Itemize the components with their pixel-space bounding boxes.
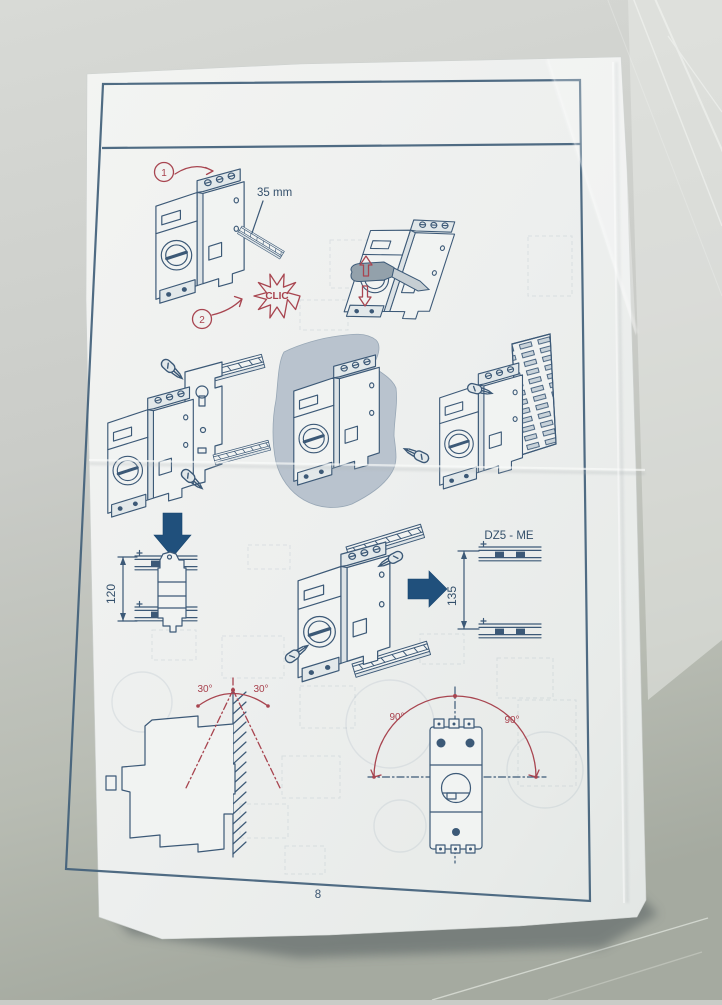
step-2-badge: 2 <box>199 315 205 326</box>
breaker-front-view <box>430 719 482 853</box>
rail-model-label: DZ5 - ME <box>484 530 534 542</box>
dim-135-label: 135 <box>445 586 459 606</box>
step-1-badge: 1 <box>161 168 167 179</box>
clic-label: CLIC <box>265 291 288 302</box>
dim-120-label: 120 <box>104 584 118 604</box>
tilt-right-label: 30° <box>253 684 268 695</box>
photographed-instruction-sheet: 1 2 35 mm CLIC <box>0 0 722 1000</box>
rail-width-label: 35 mm <box>257 187 292 199</box>
rotation-right-label: 90° <box>504 715 519 726</box>
rotation-left-label: 90° <box>389 712 404 723</box>
page-number: 8 <box>315 889 321 901</box>
tilt-left-label: 30° <box>197 684 212 695</box>
terminal-lug <box>106 776 116 790</box>
